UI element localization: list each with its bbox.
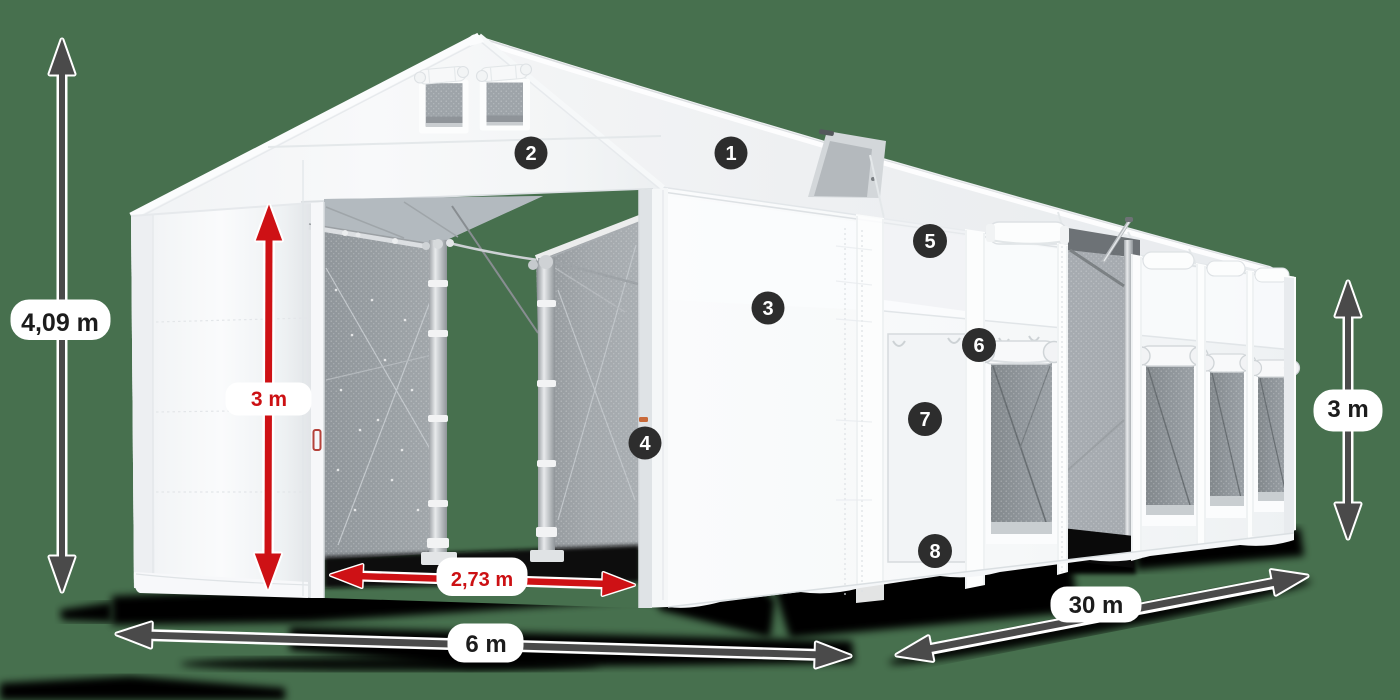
svg-text:3 m: 3 m <box>251 388 287 411</box>
svg-text:1: 1 <box>725 143 736 165</box>
svg-text:6: 6 <box>973 335 984 357</box>
svg-text:8: 8 <box>929 541 940 563</box>
svg-text:3 m: 3 m <box>1327 396 1368 423</box>
svg-text:30 m: 30 m <box>1069 592 1124 619</box>
svg-text:2: 2 <box>525 143 536 165</box>
svg-text:3: 3 <box>762 298 773 320</box>
svg-text:4: 4 <box>639 433 651 455</box>
svg-text:7: 7 <box>919 409 930 431</box>
svg-text:4,09 m: 4,09 m <box>21 309 99 337</box>
svg-text:6 m: 6 m <box>465 631 506 658</box>
svg-text:2,73 m: 2,73 m <box>451 569 513 591</box>
svg-text:5: 5 <box>924 231 935 253</box>
